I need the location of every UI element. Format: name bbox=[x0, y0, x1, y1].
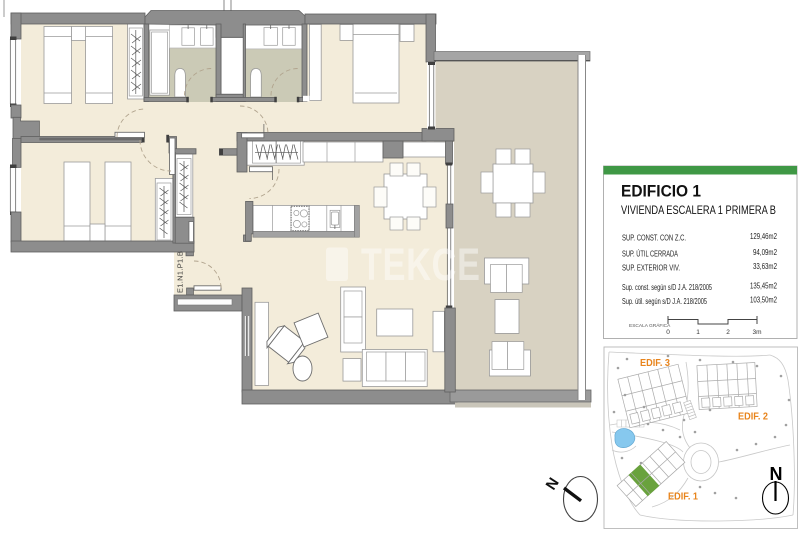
svg-text:TEKCE: TEKCE bbox=[361, 241, 481, 291]
svg-text:129,46m2: 129,46m2 bbox=[750, 232, 777, 241]
svg-text:E1.N1.P1.B: E1.N1.P1.B bbox=[176, 251, 185, 293]
svg-text:1: 1 bbox=[696, 329, 700, 336]
svg-text:33,63m2: 33,63m2 bbox=[753, 262, 777, 271]
svg-text:SUP. ÚTIL CERRADA: SUP. ÚTIL CERRADA bbox=[622, 250, 678, 259]
svg-text:0: 0 bbox=[666, 329, 670, 336]
svg-text:EDIF. 1: EDIF. 1 bbox=[668, 492, 698, 503]
svg-text:135,45m2: 135,45m2 bbox=[750, 282, 777, 291]
svg-text:94,09m2: 94,09m2 bbox=[753, 248, 777, 257]
svg-text:SUP. CONST. CON Z.C.: SUP. CONST. CON Z.C. bbox=[622, 234, 686, 243]
svg-text:SUP. EXTERIOR VIV.: SUP. EXTERIOR VIV. bbox=[622, 264, 680, 273]
svg-text:2: 2 bbox=[726, 329, 730, 336]
svg-text:Sup. útil. según s/D J.A. 218/: Sup. útil. según s/D J.A. 218/2005 bbox=[622, 297, 707, 306]
svg-text:103,50m2: 103,50m2 bbox=[750, 296, 777, 305]
svg-text:ESCALA GRÁFICA: ESCALA GRÁFICA bbox=[629, 322, 671, 329]
svg-text:VIVIENDA ESCALERA 1 PRIMERA B: VIVIENDA ESCALERA 1 PRIMERA B bbox=[621, 203, 776, 217]
svg-text:Sup. const. según s/D J.A. 218: Sup. const. según s/D J.A. 218/2005 bbox=[622, 283, 712, 292]
svg-text:EDIF. 3: EDIF. 3 bbox=[640, 358, 670, 369]
svg-text:EDIFICIO 1: EDIFICIO 1 bbox=[621, 183, 701, 201]
svg-text:EDIF. 2: EDIF. 2 bbox=[738, 412, 768, 423]
svg-text:3m: 3m bbox=[752, 329, 761, 336]
svg-text:N: N bbox=[543, 475, 563, 493]
